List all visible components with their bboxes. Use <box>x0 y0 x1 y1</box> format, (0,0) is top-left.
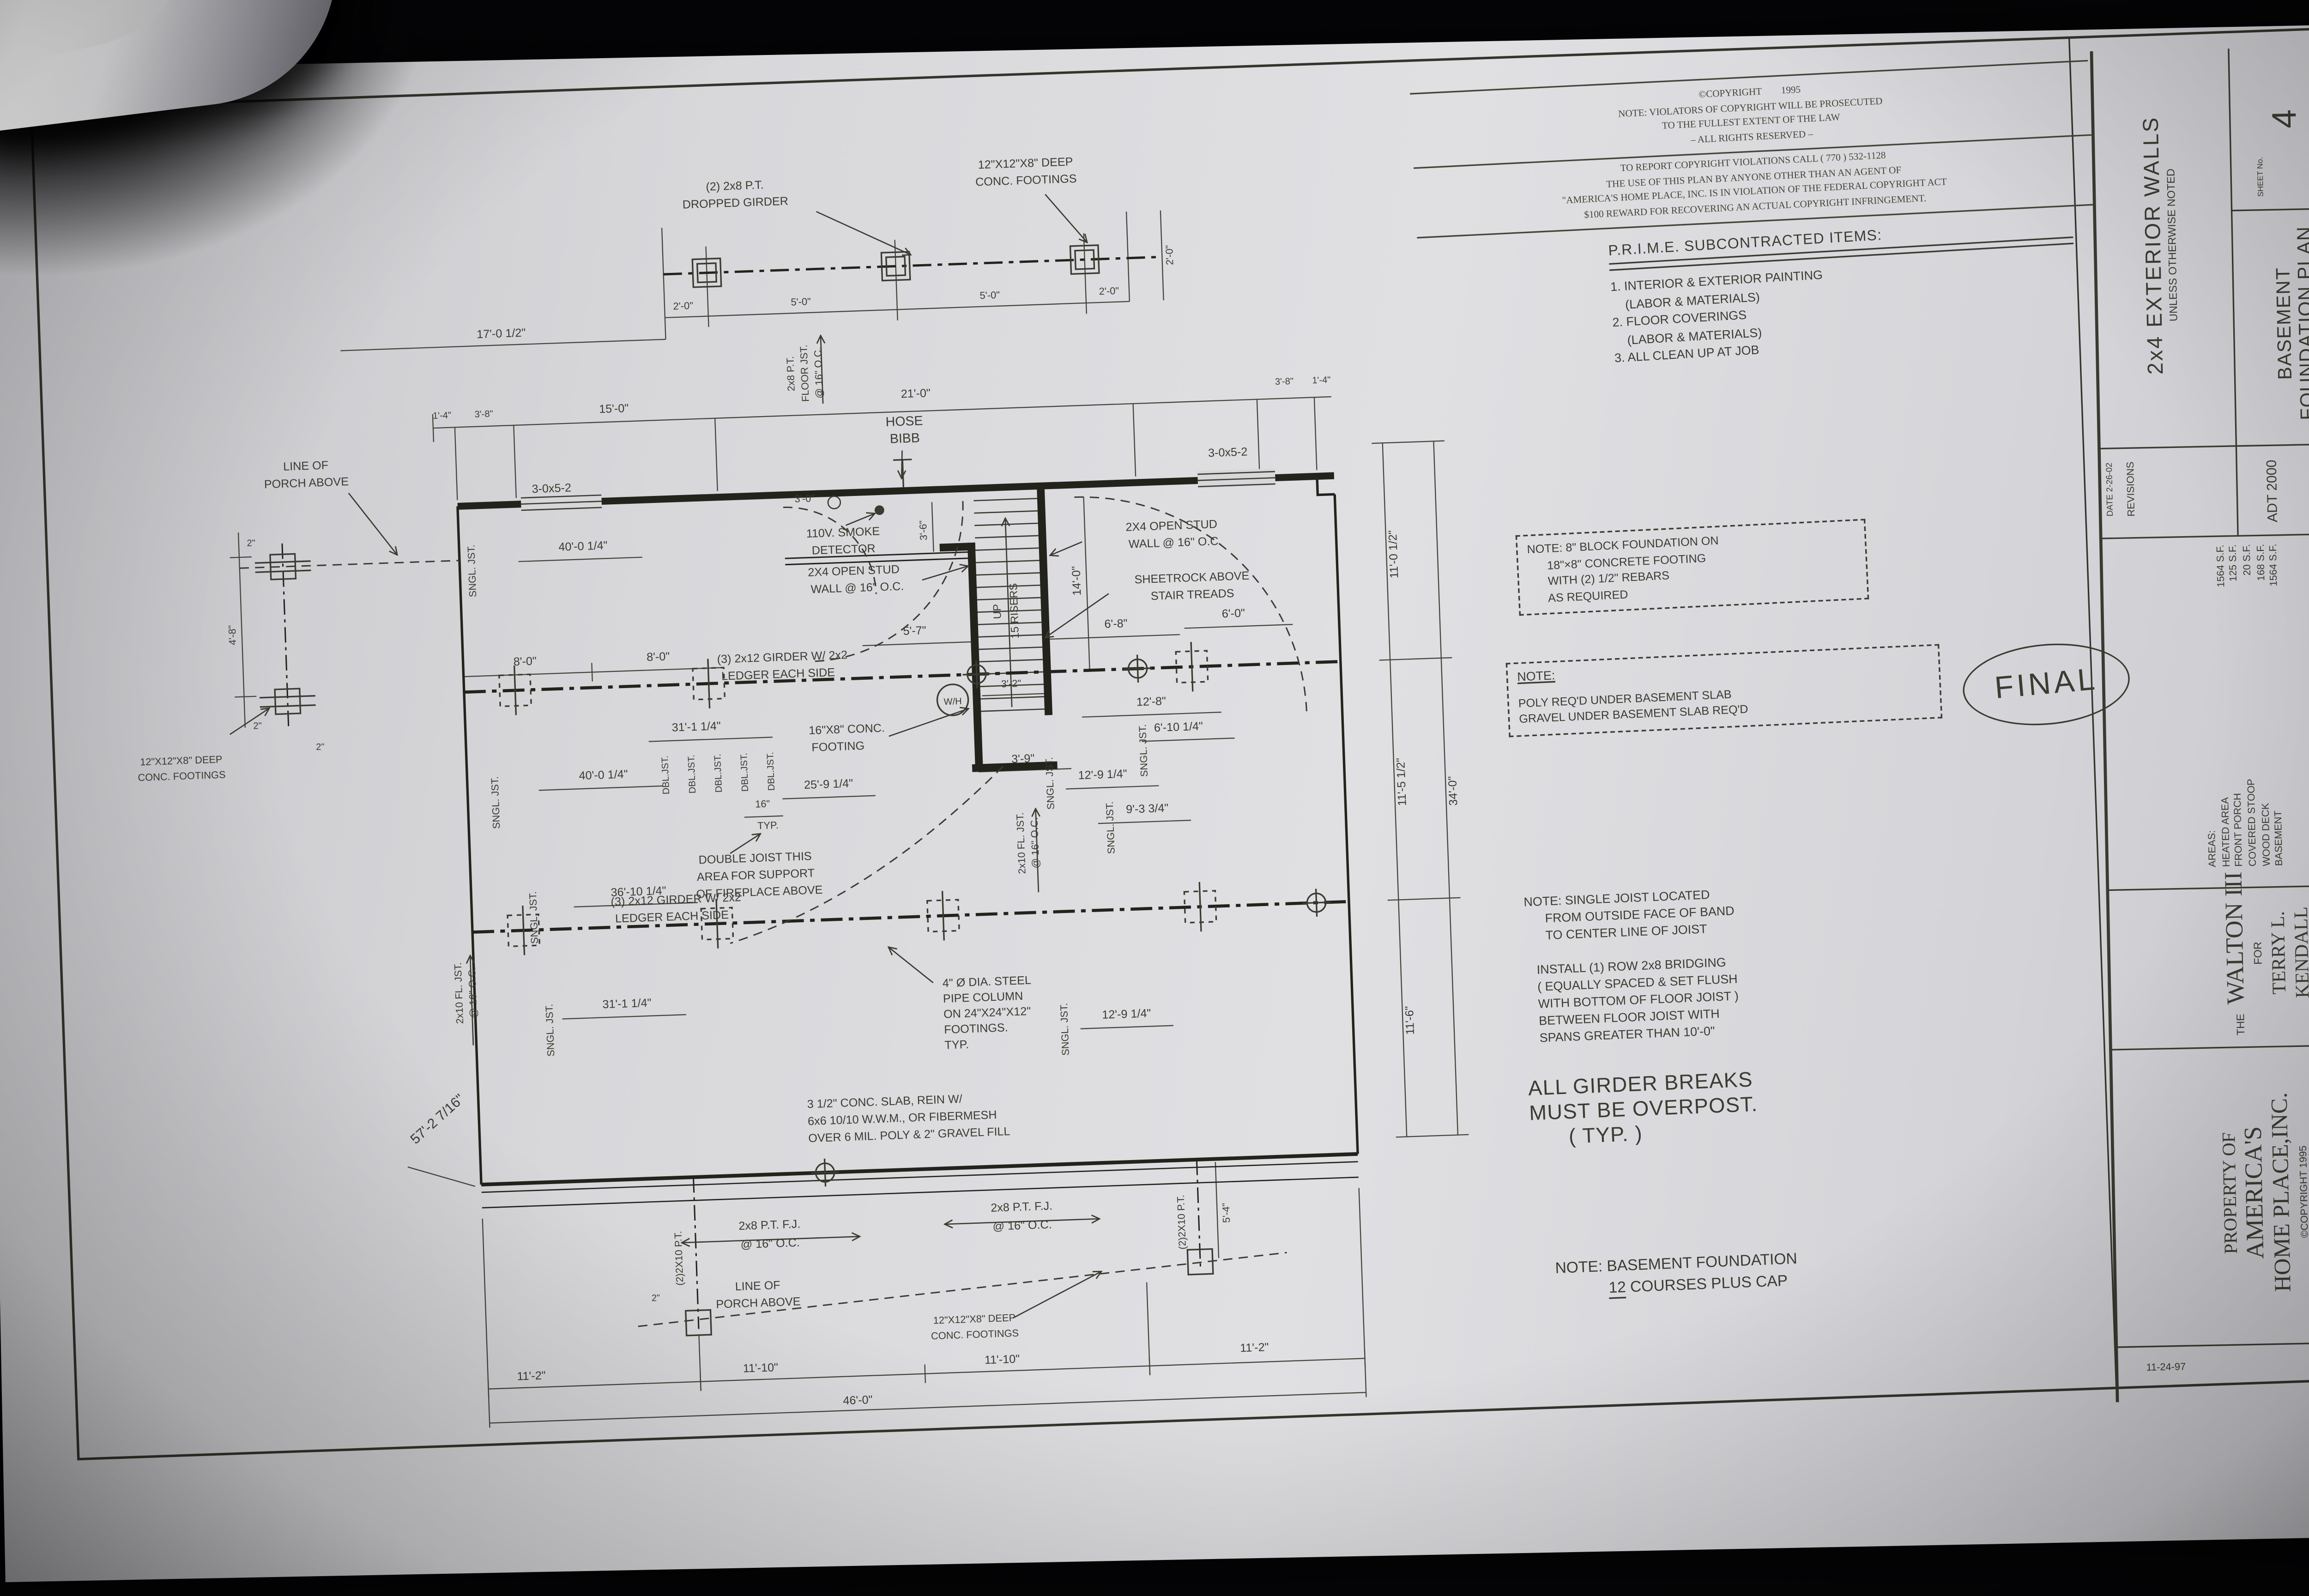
revisions-label: REVISIONS <box>2125 461 2137 516</box>
client-cell: THE WALTON III FOR TERRY L. KENDALL <box>2204 863 2309 1043</box>
plan-label: @ 16" O.C. <box>992 1218 1052 1233</box>
property-line2: AMERICA'S <box>2241 1126 2271 1259</box>
note-poly-lines: POLY REQ'D UNDER BASEMENT SLABGRAVEL UND… <box>1518 678 1931 728</box>
plan-label: 3'-9" <box>1011 752 1035 766</box>
area-name: COVERED STOOP <box>2247 779 2261 866</box>
adt-cell: ADT 2000 <box>2259 449 2285 533</box>
areas-label: AREAS: <box>2207 830 2221 868</box>
plan-label: CONC. FOOTINGS <box>931 1327 1019 1342</box>
plan-label: DBL.JST. <box>765 752 777 791</box>
wall-spec: 2x4 EXTERIOR WALLS <box>2137 116 2166 375</box>
plan-label: 15'-0" <box>599 402 629 416</box>
revisions-cell: REVISIONS <box>2121 447 2141 531</box>
area-name: FRONT PORCH <box>2233 793 2248 867</box>
plan-label: CONC. FOOTINGS <box>138 769 226 784</box>
dashed-lines <box>238 490 1327 1340</box>
plot-date: 11-24-97 <box>2146 1362 2186 1374</box>
plan-label: 2" <box>651 1293 660 1304</box>
plan-label: 3'-8" <box>1275 376 1294 387</box>
sheet-number-cell: SHEET No. 4 <box>2236 41 2309 197</box>
plan-label: CONC. FOOTINGS <box>975 172 1077 189</box>
hose-bibb-symbol <box>902 460 903 488</box>
plan-label: 40'-0 1/4" <box>558 539 608 554</box>
plan-label: 25'-9 1/4" <box>804 777 853 792</box>
pier-symbols <box>786 445 1340 1187</box>
plan-label: SNGL. JST. <box>489 776 502 829</box>
plan-label: 12"X12"X8" DEEP <box>978 155 1073 171</box>
plan-label: 5'-4" <box>1220 1203 1232 1223</box>
stairwell <box>938 489 1058 773</box>
plan-label: 2x10 FL. JST. <box>1014 812 1028 874</box>
plan-label: SNGL. JST. <box>1058 1003 1071 1056</box>
property-line3: HOME PLACE,INC. <box>2268 1092 2298 1292</box>
plan-label: 11'-10" <box>743 1361 778 1375</box>
plan-label: 17'-0 1/2" <box>477 326 526 341</box>
plan-label: 9'-3 3/4" <box>1126 802 1169 816</box>
plan-label: 5'-0" <box>979 289 1000 301</box>
plan-label: 6x6 10/10 W.W.M., OR FIBERMESH <box>808 1108 997 1128</box>
plan-label: TYP. <box>757 819 779 832</box>
plan-label: FOOTING <box>811 739 865 754</box>
note-block-foundation: NOTE: 8" BLOCK FOUNDATION ON 18"×8" CONC… <box>1516 519 1869 616</box>
plan-label: SNGL. JST. <box>527 891 540 944</box>
date-cell: DATE 2-26-02 <box>2102 447 2119 532</box>
plan-label: 31'-1 1/4" <box>602 997 652 1011</box>
plan-label: (3) 2x12 GIRDER W/ 2x2 <box>717 648 847 666</box>
plan-label: 11'-0 1/2" <box>1386 530 1401 579</box>
drawing-title-2: FOUNDATION PLAN <box>2293 226 2309 420</box>
area-value: 125 S.F. <box>2229 544 2243 582</box>
plan-label: 16" <box>755 798 770 810</box>
plan-label: DOUBLE JOIST THIS <box>698 850 812 867</box>
plan-label: (2)2X10 P.T. <box>1175 1195 1188 1250</box>
plan-label: 2'-0" <box>1163 245 1175 265</box>
property-cell: PROPERTY OF AMERICA'S HOME PLACE,INC. ©C… <box>2200 1047 2309 1337</box>
plan-label: OF FIREPLACE ABOVE <box>696 883 823 901</box>
plan-label: 12"X12"X8" DEEP <box>140 753 223 768</box>
plan-label: TYP. <box>944 1038 969 1052</box>
sheet-number: 4 <box>2265 109 2305 129</box>
client-name: TERRY L. KENDALL <box>2265 863 2309 1042</box>
plan-label: 11'-2" <box>1240 1341 1269 1354</box>
property-line1: PROPERTY OF <box>2218 1132 2243 1254</box>
plan-label: 2x8 P.T. <box>784 356 797 392</box>
plan-label: (2) 2x8 P.T. <box>706 178 764 193</box>
plan-label: OVER 6 MIL. POLY & 2" GRAVEL FILL <box>808 1125 1010 1145</box>
model-name: WALTON III <box>2220 871 2251 1005</box>
plan-label: @ 16" O.C. <box>812 347 825 399</box>
smoke-detector-symbol <box>875 506 883 514</box>
plan-label: 14'-0" <box>1070 566 1083 596</box>
plan-label: 21'-0" <box>901 387 931 400</box>
plan-label: 11'-10" <box>984 1353 1020 1367</box>
plan-label: @ 16" O.C. <box>1028 817 1042 869</box>
area-name: HEATED AREA <box>2220 797 2235 867</box>
plan-label: 2X4 OPEN STUD <box>1125 518 1217 534</box>
areas-cell: AREAS: HEATED AREA1564 S.F.FRONT PORCH12… <box>2186 534 2304 877</box>
plan-label: 2" <box>316 742 325 752</box>
plan-label: 3'-0" <box>794 492 815 504</box>
plan-label: 1'-4" <box>433 410 452 421</box>
plan-label: 2X4 OPEN STUD <box>808 563 900 579</box>
sheet-label: SHEET No. <box>2256 157 2267 197</box>
plan-label: SNGL. JST. <box>465 544 478 598</box>
plan-label: 3 1/2" CONC. SLAB, REIN W/ <box>807 1093 962 1111</box>
blueprint-sheet: (2) 2x8 P.T.DROPPED GIRDER12"X12"X8" DEE… <box>0 23 2309 1582</box>
area-value: 1564 S.F. <box>2269 544 2283 586</box>
plan-label: ON 24"X24"X12" <box>943 1005 1031 1021</box>
plan-label: PORCH ABOVE <box>264 475 349 491</box>
plan-label: SHEETROCK ABOVE <box>1134 569 1250 586</box>
plan-label: 12"X12"X8" DEEP <box>933 1312 1015 1326</box>
plan-label: 11'-6" <box>1403 1006 1417 1035</box>
plan-label: 4" Ø DIA. STEEL <box>942 974 1031 990</box>
plan-label: LINE OF <box>283 459 329 473</box>
plan-label: 11'-5 1/2" <box>1394 758 1409 806</box>
plan-label: DBL.JST. <box>713 754 724 793</box>
plan-label: 3'-6" <box>917 520 929 540</box>
plan-label: DETECTOR <box>811 542 876 557</box>
plan-label: WALL @ 16" O.C. <box>810 580 904 596</box>
adt-label: ADT 2000 <box>2264 459 2280 522</box>
plan-label: 6'-0" <box>1221 607 1245 621</box>
plan-label: HOSE <box>885 413 923 429</box>
for-label: FOR <box>2253 942 2264 965</box>
plan-labels: (2) 2x8 P.T.DROPPED GIRDER12"X12"X8" DEE… <box>117 143 1480 1431</box>
plan-label: @ 16" O.C. <box>466 967 479 1019</box>
plan-label: 6'-10 1/4" <box>1154 720 1203 735</box>
area-value: 168 S.F. <box>2255 544 2269 581</box>
plan-label: 2x10 FL. JST. <box>452 962 465 1024</box>
plan-label: DBL.JST. <box>739 753 750 792</box>
plan-label: 1'-4" <box>1312 375 1331 386</box>
drawing-title-cell: BASEMENT FOUNDATION PLAN <box>2259 206 2309 440</box>
area-name: WOOD DECK <box>2260 803 2274 866</box>
plan-label: 2'-0" <box>673 300 693 312</box>
plan-label: 6'-8" <box>1104 617 1128 631</box>
plan-label: SNGL. JST. <box>1104 801 1117 854</box>
plan-label: 110V. SMOKE <box>806 525 880 540</box>
plan-label: FOOTINGS. <box>944 1021 1008 1036</box>
plan-label: 34'-0" <box>1446 776 1460 806</box>
plan-label: STAIR TREADS <box>1150 587 1234 603</box>
plan-label: PORCH ABOVE <box>716 1295 801 1311</box>
plan-label: 40'-0 1/4" <box>579 768 628 782</box>
plan-label: 57'-2 7/16" <box>408 1091 467 1147</box>
plan-label: 11'-2" <box>517 1369 546 1383</box>
plan-label: BIBB <box>889 430 920 446</box>
plan-label: AREA FOR SUPPORT <box>696 867 815 884</box>
wall-spec-sub: UNLESS OTHERWISE NOTED <box>2166 169 2180 321</box>
area-value: 20 S.F. <box>2242 544 2256 575</box>
note-single-joist: NOTE: SINGLE JOIST LOCATED FROM OUTSIDE … <box>1523 878 1916 1047</box>
plan-label: 3'-8" <box>474 409 493 419</box>
plan-label: WALL @ 16" O.C. <box>1128 535 1222 551</box>
plan-label: 12'-8" <box>1136 695 1166 708</box>
plan-label: (2)2X10 P.T. <box>672 1231 685 1286</box>
plan-label: 2'-0" <box>1099 285 1119 297</box>
plan-label: SNGL. JST. <box>1136 724 1150 777</box>
plan-label: 2" <box>247 538 255 549</box>
plan-label: 3-0x5-2 <box>1208 445 1248 459</box>
plan-label: SNGL. JST. <box>1043 757 1057 810</box>
plan-label: @ 16" O.C. <box>740 1236 800 1251</box>
plan-label: 16"X8" CONC. <box>809 721 885 737</box>
plan-label: DBL.JST. <box>686 755 698 794</box>
areas-table: HEATED AREA1564 S.F.FRONT PORCH125 S.F.C… <box>2215 544 2288 867</box>
prime-subcontracted-items: P.R.I.M.E. SUBCONTRACTED ITEMS: 1. INTER… <box>1608 216 2079 368</box>
plan-label: 15 RISERS <box>1007 583 1021 639</box>
photo-of-blueprint: (2) 2x8 P.T.DROPPED GIRDER12"X12"X8" DEE… <box>0 0 2309 1596</box>
plan-label: SNGL. JST. <box>543 1004 556 1057</box>
plan-label: DROPPED GIRDER <box>682 195 788 212</box>
plan-label: 4'-8" <box>226 625 238 645</box>
plan-label: 3-0x5-2 <box>532 481 571 496</box>
plan-label: 31'-1 1/4" <box>671 719 721 734</box>
plan-label: LINE OF <box>735 1279 780 1293</box>
the-label: THE <box>2236 1014 2247 1035</box>
drawing-title-1: BASEMENT <box>2273 267 2297 380</box>
plan-label: FLOOR JST. <box>798 345 811 402</box>
date-value: DATE 2-26-02 <box>2105 462 2116 516</box>
area-value: 1564 S.F. <box>2215 544 2230 587</box>
plan-label: 5'-7" <box>903 624 926 638</box>
plan-label: 12'-9 1/4" <box>1078 768 1127 782</box>
wall-spec-cell: 2x4 EXTERIOR WALLS UNLESS OTHERWISE NOTE… <box>2104 58 2213 432</box>
plan-label: 46'-0" <box>843 1393 873 1407</box>
plan-label: 2x8 P.T. F.J. <box>738 1217 801 1233</box>
plan-label: 12'-9 1/4" <box>1102 1007 1151 1022</box>
plan-label: 8'-0" <box>647 650 670 664</box>
plan-label: 2" <box>253 721 262 731</box>
plan-label: UP <box>991 604 1003 619</box>
plan-label: 3'-2" <box>1001 677 1021 689</box>
plan-label: PIPE COLUMN <box>943 990 1023 1005</box>
area-name: BASEMENT <box>2274 810 2288 866</box>
courses-count: 12 <box>1608 1279 1626 1298</box>
plan-label: 8'-0" <box>513 655 537 669</box>
plan-label: 5'-0" <box>791 296 811 308</box>
tb-copyright: ©COPYRIGHT 1995 <box>2298 1145 2309 1238</box>
plan-label: 2x8 P.T. F.J. <box>991 1199 1053 1215</box>
plan-label: W/H <box>943 696 962 707</box>
plan-label: DBL.JST. <box>660 756 671 795</box>
